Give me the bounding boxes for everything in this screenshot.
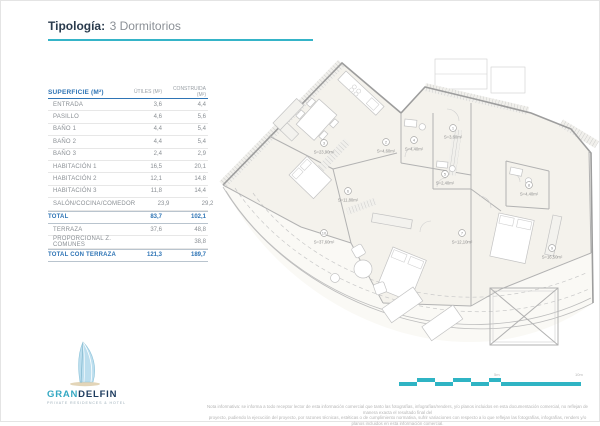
disclaimer-line-1: Nota informativa: se informa a todo rece… bbox=[206, 404, 589, 415]
brand-tagline: PRIVATE RESIDENCES & HOTEL bbox=[47, 401, 157, 405]
svg-text:S=37,60m²: S=37,60m² bbox=[314, 240, 335, 245]
svg-text:S=16,50m²: S=16,50m² bbox=[542, 255, 563, 260]
scale-bar: 5m 10m bbox=[399, 372, 583, 386]
brand-name-gran: GRAN bbox=[47, 389, 78, 400]
svg-text:S=4,60m²: S=4,60m² bbox=[377, 149, 396, 154]
svg-text:S=3,60m²: S=3,60m² bbox=[444, 135, 463, 140]
svg-text:S=4,40m²: S=4,40m² bbox=[520, 192, 539, 197]
brand-name: GRANDELFIN bbox=[47, 389, 157, 400]
disclaimer: Nota informativa: se informa a todo rece… bbox=[206, 404, 589, 426]
brochure-page: Tipología: 3 Dormitorios SUPERFICIE (M²)… bbox=[0, 0, 600, 422]
brand-logo: GRANDELFIN PRIVATE RESIDENCES & HOTEL bbox=[47, 339, 157, 405]
common-core bbox=[435, 59, 525, 93]
svg-text:S=2,40m²: S=2,40m² bbox=[436, 181, 455, 186]
svg-text:S=23,90m²: S=23,90m² bbox=[314, 150, 335, 155]
scale-mid-label: 5m bbox=[494, 372, 500, 377]
scale-end-label: 10m bbox=[575, 372, 583, 377]
svg-text:S=11,80m²: S=11,80m² bbox=[338, 198, 359, 203]
svg-text:S=12,10m²: S=12,10m² bbox=[452, 240, 473, 245]
disclaimer-line-2: proyecto, pudiendo la ejecución del proy… bbox=[206, 415, 589, 426]
svg-text:S=4,40m²: S=4,40m² bbox=[405, 147, 424, 152]
brand-name-delfin: DELFIN bbox=[78, 389, 117, 400]
svg-text:10: 10 bbox=[322, 230, 327, 235]
